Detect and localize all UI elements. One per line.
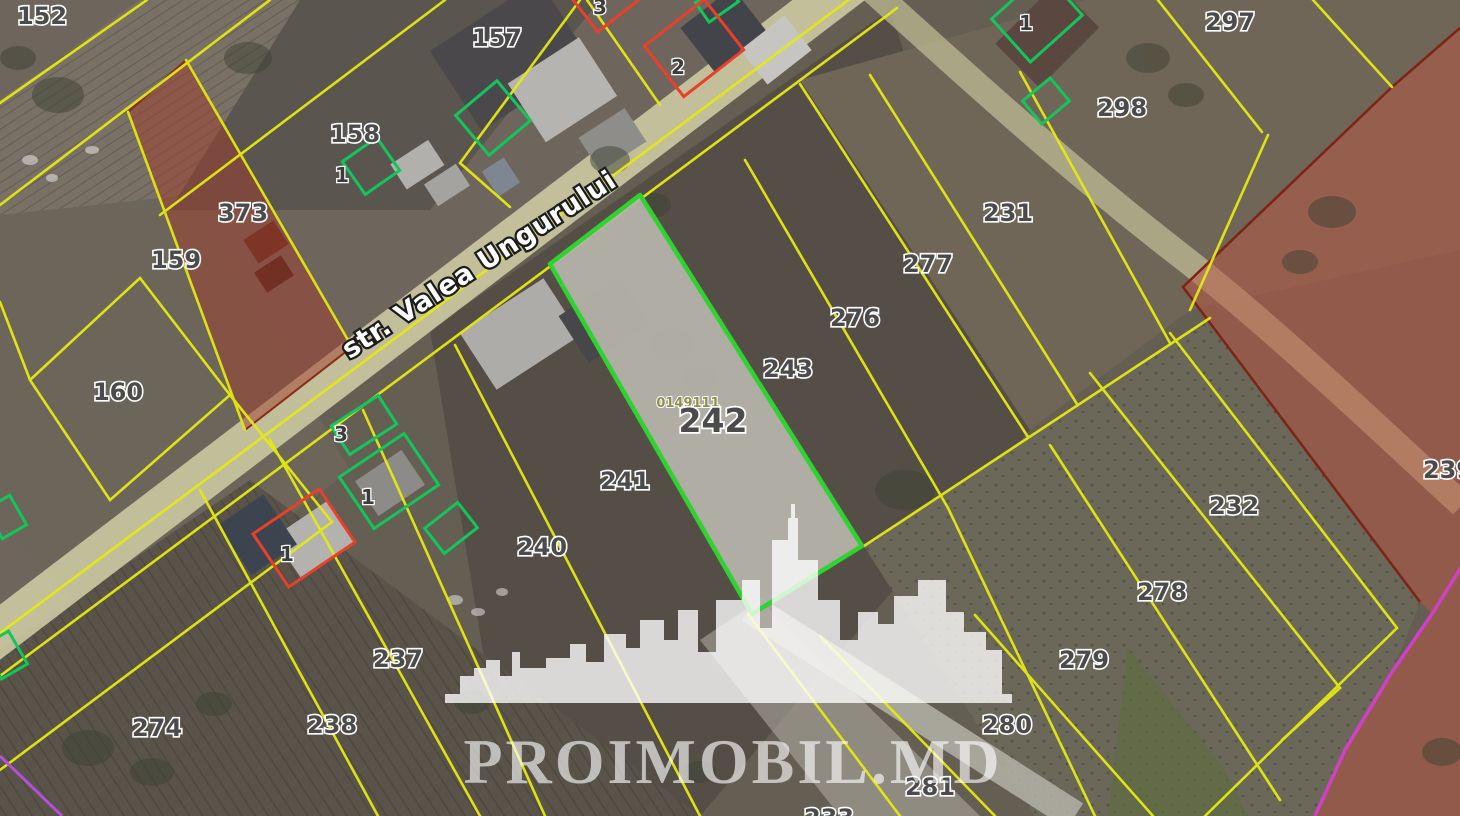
parcel-label-373: 373 [218,199,268,227]
parcel-label-160: 160 [93,378,143,406]
building-label-3-top: 3 [593,0,607,19]
parcel-label-277: 277 [903,250,953,278]
parcel-label-157: 157 [472,24,522,52]
parcel-label-241: 241 [600,467,650,495]
parcel-label-279: 279 [1059,646,1109,674]
parcel-label-239: 239 [1423,456,1460,484]
parcel-label-238: 238 [307,711,357,739]
parcel-label-232: 232 [1209,492,1259,520]
parcel-label-159: 159 [151,246,201,274]
building-label-2: 2 [671,55,685,79]
parcel-label-240: 240 [517,533,567,561]
building-label-1-mid: 1 [361,485,375,509]
parcel-label-297: 297 [1205,8,1255,36]
parcel-label-233: 233 [804,804,854,816]
building-label-1-south: 1 [280,542,294,566]
parcel-label-274: 274 [132,714,182,742]
parcel-label-298: 298 [1097,94,1147,122]
parcel-label-237: 237 [373,645,423,673]
parcel-label-276: 276 [830,304,880,332]
building-label-3-mid: 3 [334,422,348,446]
parcel-label-278: 278 [1137,578,1187,606]
cadastral-map-view[interactable]: 152 157 158 373 159 160 297 298 231 277 … [0,0,1460,816]
parcel-label-243: 243 [763,355,813,383]
building-label-1-158: 1 [335,163,349,187]
building-label-1-ne: 1 [1019,11,1033,35]
map-canvas[interactable]: 152 157 158 373 159 160 297 298 231 277 … [0,0,1460,816]
watermark-text: PROIMOBIL.MD [463,726,1002,797]
parcel-label-242: 242 [679,401,748,440]
parcel-label-158: 158 [330,120,380,148]
parcel-label-152: 152 [17,2,67,30]
parcel-label-231: 231 [983,199,1033,227]
